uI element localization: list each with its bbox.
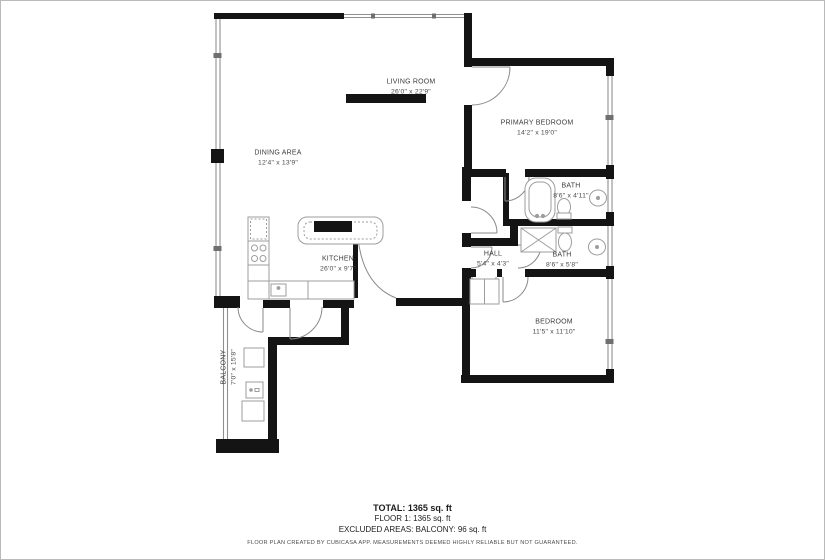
room-name: LIVING ROOM xyxy=(387,77,436,87)
room-label-primary-bedroom: PRIMARY BEDROOM 14'2" x 19'0" xyxy=(501,118,574,137)
kitchen-counter-bottom xyxy=(248,281,354,299)
room-name: BEDROOM xyxy=(533,317,576,327)
total-area: TOTAL: 1365 sq. ft xyxy=(1,503,824,514)
room-label-bedroom: BEDROOM 11'5" x 11'10" xyxy=(533,317,576,336)
room-label-bath-2: BATH 8'6" x 5'8" xyxy=(546,250,578,269)
room-name: KITCHEN xyxy=(320,254,356,264)
room-name: BALCONY xyxy=(219,349,229,385)
room-dims: 12'4" x 13'9" xyxy=(254,158,301,168)
room-dims: 26'0" x 22'9" xyxy=(387,87,436,97)
shower xyxy=(521,228,556,252)
stove xyxy=(248,241,269,265)
balcony-chair xyxy=(244,348,264,367)
room-dims: 26'0" x 9'7" xyxy=(320,264,356,274)
room-name: PRIMARY BEDROOM xyxy=(501,118,574,128)
kitchen-island xyxy=(298,217,383,244)
excluded-areas: EXCLUDED AREAS: BALCONY: 96 sq. ft xyxy=(1,525,824,535)
bathtub xyxy=(525,178,555,222)
floor-plan-page: LIVING ROOM 26'0" x 22'9" DINING AREA 12… xyxy=(0,0,825,560)
toilet-bath1 xyxy=(557,199,571,220)
room-dims: 5'4" x 4'3" xyxy=(477,259,509,269)
room-name: HALL xyxy=(477,249,509,259)
sink-bath2 xyxy=(589,239,606,255)
room-name: BATH xyxy=(553,181,588,191)
sink-bath1 xyxy=(590,190,607,206)
toilet-bath2 xyxy=(558,227,572,251)
room-dims: 14'2" x 19'0" xyxy=(501,128,574,138)
room-label-kitchen: KITCHEN 26'0" x 9'7" xyxy=(320,254,356,273)
room-label-living-room: LIVING ROOM 26'0" x 22'9" xyxy=(387,77,436,96)
room-label-dining-area: DINING AREA 12'4" x 13'9" xyxy=(254,148,301,167)
area-summary: TOTAL: 1365 sq. ft FLOOR 1: 1365 sq. ft … xyxy=(1,503,824,535)
room-label-bath-1: BATH 8'6" x 4'11" xyxy=(553,181,588,200)
kitchen-sink xyxy=(271,284,286,296)
floor1-area: FLOOR 1: 1365 sq. ft xyxy=(1,514,824,524)
cooktop xyxy=(314,221,352,232)
disclaimer-text: FLOOR PLAN CREATED BY CUBICASA APP. MEAS… xyxy=(1,540,824,546)
balcony-table xyxy=(246,382,263,398)
room-label-hall: HALL 5'4" x 4'3" xyxy=(477,249,509,268)
room-label-balcony: BALCONY 7'0" x 15'8" xyxy=(219,349,238,385)
room-dims: 8'6" x 5'8" xyxy=(546,260,578,270)
balcony-chair-2 xyxy=(242,401,264,421)
room-dims: 8'6" x 4'11" xyxy=(553,191,588,201)
room-name: BATH xyxy=(546,250,578,260)
bedroom-closet xyxy=(470,279,499,304)
room-name: DINING AREA xyxy=(254,148,301,158)
room-dims: 11'5" x 11'10" xyxy=(533,327,576,337)
room-dims: 7'0" x 15'8" xyxy=(229,349,239,385)
